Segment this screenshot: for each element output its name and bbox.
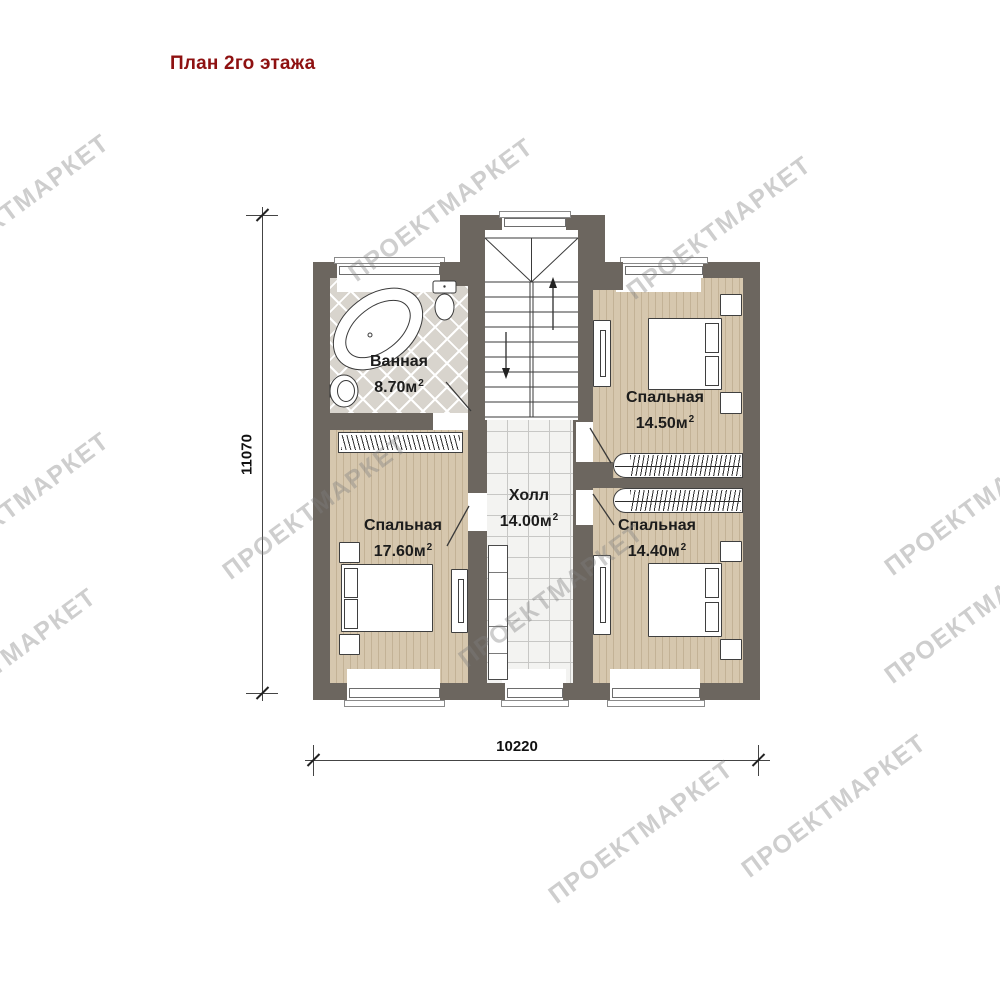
room-label-hall: Холл 14.00м2 [500,485,558,533]
door-swing-bathroom [446,382,471,411]
floor-plan: Ванная 8.70м2 Спальная 17.60м2 Спальная … [313,215,760,700]
sink [330,375,358,407]
toilet [433,281,456,320]
watermark: ПРОЕКТМАРКЕТ [879,535,1000,691]
window-sill [607,700,705,707]
room-label-bedroom-top-right: Спальная 14.50м2 [626,387,704,435]
room-label-bedroom-bottom-right: Спальная 14.40м2 [618,515,696,563]
room-label-bedroom-left: Спальная 17.60м2 [364,515,442,563]
window-sill [344,700,445,707]
dimension-label-horizontal: 10220 [467,738,567,755]
watermark: ПРОЕКТМАРКЕТ [0,427,115,583]
page-title: План 2го этажа [170,53,315,75]
watermark: ПРОЕКТМАРКЕТ [736,729,932,885]
dimension-label-vertical: 11070 [239,425,256,485]
window-sill [501,700,569,707]
room-label-bathroom: Ванная 8.70м2 [370,351,428,399]
door-swing-bedroom-top-right [590,428,611,463]
dimension-line-horizontal [305,760,770,761]
watermark: ПРОЕКТМАРКЕТ [0,583,102,739]
staircase [485,238,578,417]
watermark: ПРОЕКТМАРКЕТ [543,755,739,911]
watermark: ПРОЕКТМАРКЕТ [879,427,1000,583]
dimension-line-vertical [262,207,263,701]
door-swing-bedroom-left [447,506,469,546]
watermark: ПРОЕКТМАРКЕТ [0,129,115,285]
door-swing-bedroom-bottom-right [593,494,614,525]
plan-linework [313,215,760,700]
stair-down-arrow [502,368,510,379]
